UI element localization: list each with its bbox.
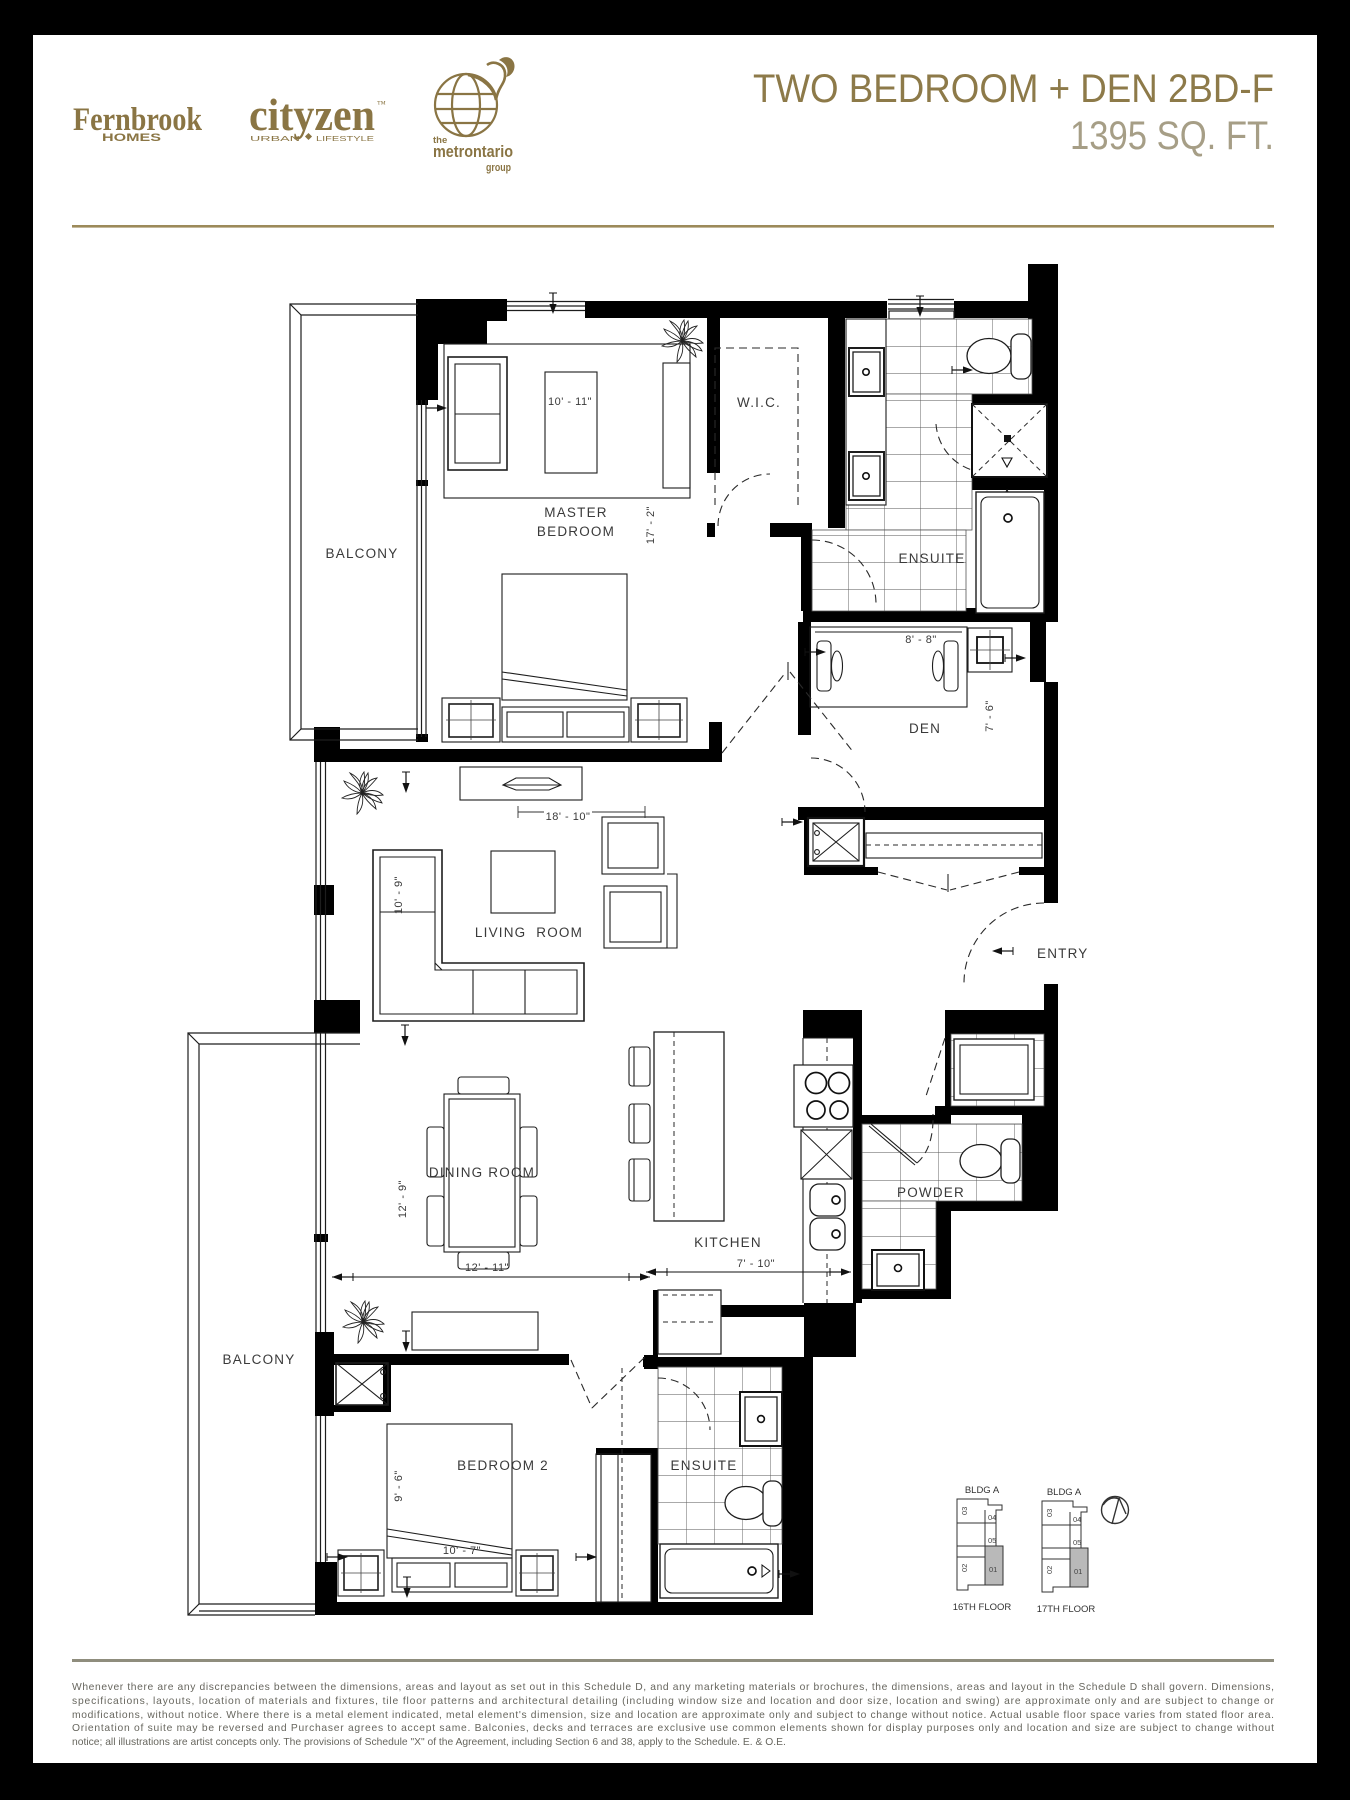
svg-text:01: 01 — [1074, 1567, 1082, 1576]
svg-text:05: 05 — [1073, 1538, 1081, 1547]
svg-text:cityzen: cityzen — [249, 90, 375, 140]
svg-text:Orientation of suite may be re: Orientation of suite may be reversed and… — [72, 1723, 1274, 1734]
svg-text:01: 01 — [989, 1565, 997, 1574]
svg-text:POWDER: POWDER — [897, 1185, 965, 1200]
svg-text:BLDG A: BLDG A — [1047, 1487, 1082, 1498]
svg-text:HOMES: HOMES — [102, 132, 161, 144]
svg-text:ENSUITE: ENSUITE — [671, 1458, 738, 1473]
svg-text:17TH FLOOR: 17TH FLOOR — [1037, 1604, 1096, 1615]
svg-text:02: 02 — [960, 1564, 969, 1572]
svg-text:LIFESTYLE: LIFESTYLE — [316, 134, 374, 143]
svg-text:16TH FLOOR: 16TH FLOOR — [953, 1602, 1012, 1613]
svg-text:Whenever there are any discrep: Whenever there are any discrepancies bet… — [72, 1682, 1274, 1693]
svg-text:9' - 6": 9' - 6" — [393, 1470, 405, 1502]
svg-text:7' - 6": 7' - 6" — [984, 700, 996, 732]
svg-text:group: group — [486, 162, 511, 174]
svg-text:04: 04 — [988, 1513, 996, 1522]
svg-text:8' - 8": 8' - 8" — [905, 634, 937, 646]
svg-text:10' - 7": 10' - 7" — [443, 1545, 481, 1557]
svg-text:03: 03 — [960, 1507, 969, 1515]
svg-text:metrontario: metrontario — [433, 143, 513, 161]
svg-text:02: 02 — [1045, 1566, 1054, 1574]
svg-text:MASTER: MASTER — [544, 505, 607, 520]
svg-text:DINING ROOM: DINING ROOM — [429, 1165, 535, 1180]
svg-text:05: 05 — [988, 1536, 996, 1545]
svg-text:ENTRY: ENTRY — [1037, 946, 1089, 961]
svg-text:12' - 9": 12' - 9" — [397, 1180, 409, 1218]
svg-text:™: ™ — [377, 99, 386, 109]
svg-text:10' - 9": 10' - 9" — [393, 876, 405, 914]
svg-text:7' - 10": 7' - 10" — [737, 1258, 775, 1270]
svg-text:URBAN: URBAN — [250, 134, 300, 143]
svg-text:1395 SQ. FT.: 1395 SQ. FT. — [1070, 114, 1274, 158]
svg-text:BEDROOM: BEDROOM — [537, 524, 615, 539]
svg-text:BALCONY: BALCONY — [326, 546, 399, 561]
svg-text:12' - 11": 12' - 11" — [465, 1262, 509, 1274]
svg-text:04: 04 — [1073, 1515, 1081, 1524]
svg-text:LIVING ROOM: LIVING ROOM — [475, 925, 583, 940]
svg-text:10' - 11": 10' - 11" — [548, 396, 592, 408]
svg-text:KITCHEN: KITCHEN — [694, 1235, 762, 1250]
svg-text:18' - 10": 18' - 10" — [546, 811, 591, 823]
svg-text:TWO BEDROOM + DEN 2BD-F: TWO BEDROOM + DEN 2BD-F — [753, 67, 1274, 111]
svg-text:BLDG A: BLDG A — [965, 1485, 1000, 1496]
svg-text:specifications, layouts, locat: specifications, layouts, location of mat… — [72, 1696, 1275, 1707]
svg-text:DEN: DEN — [909, 721, 941, 736]
svg-text:W.I.C.: W.I.C. — [737, 395, 781, 410]
svg-text:notice; all illustrations are: notice; all illustrations are artist con… — [72, 1737, 786, 1748]
svg-text:BALCONY: BALCONY — [223, 1352, 296, 1367]
svg-text:modifications, without notice.: modifications, without notice. Where the… — [72, 1710, 1274, 1721]
svg-text:17' - 2": 17' - 2" — [645, 506, 657, 544]
svg-text:ENSUITE: ENSUITE — [899, 551, 966, 566]
svg-text:BEDROOM 2: BEDROOM 2 — [457, 1458, 549, 1473]
svg-text:03: 03 — [1045, 1509, 1054, 1517]
